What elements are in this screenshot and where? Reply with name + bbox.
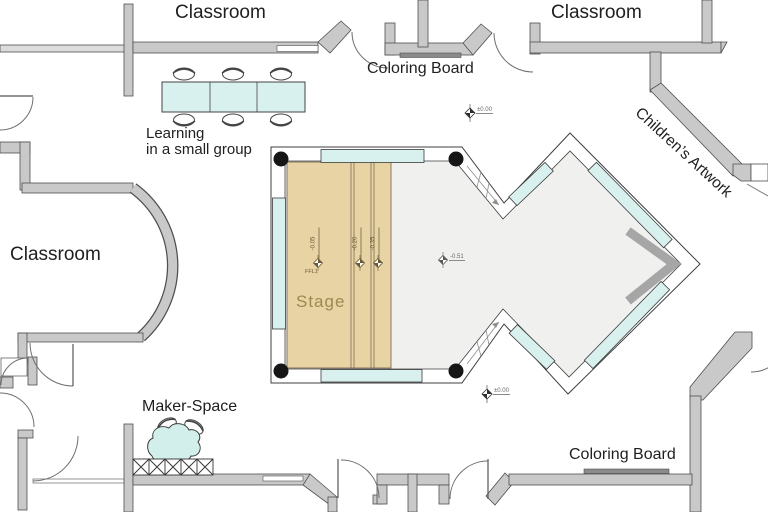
label-learning-line1: Learning: [146, 126, 252, 142]
glass-line: [747, 184, 768, 196]
wall-segment: [124, 424, 133, 512]
wall-segment: [18, 333, 143, 342]
room-label-classroom-left: Classroom: [10, 245, 101, 265]
maker-table-blob: [148, 424, 201, 463]
threshold: [33, 479, 124, 483]
room-label-classroom-top-right: Classroom: [551, 3, 642, 23]
wall-window-inset: [263, 476, 303, 481]
label-coloring-board-top: Coloring Board: [367, 61, 474, 78]
column: [274, 152, 289, 167]
wall-segment: [690, 396, 701, 512]
wall-segment: [328, 497, 337, 512]
floor-plan-canvas: Classroom Classroom Classroom Stage Colo…: [0, 0, 768, 512]
wall-segment: [408, 474, 417, 512]
amphitheater-pavilion: [271, 133, 700, 394]
label-maker-space: Maker-Space: [142, 399, 237, 416]
label-learning-group: Learning in a small group: [146, 126, 252, 158]
door-leaf: [1, 358, 27, 376]
door-arc: [341, 460, 379, 498]
wall-segment: [530, 42, 721, 53]
wall-segment: [439, 485, 449, 504]
column: [274, 364, 289, 379]
elevation-text-step-low: -0.35: [371, 228, 380, 260]
wall-segment: [318, 21, 351, 53]
column: [449, 364, 464, 379]
column: [449, 152, 464, 167]
elevation-text-step-mid: -0.20: [353, 228, 362, 260]
room-label-classroom-top-left: Classroom: [175, 3, 266, 23]
elevation-text-entry-top: ±0.00: [476, 107, 493, 114]
label-coloring-board-bottom: Coloring Board: [569, 447, 676, 464]
wall-segment: [509, 474, 692, 485]
wall-segment: [418, 0, 428, 47]
elevation-symbol-entry-top: [465, 104, 475, 122]
door-arc: [450, 461, 488, 499]
wall-window-inset: [277, 46, 318, 52]
window: [273, 198, 286, 329]
wall-window-inset: [751, 164, 768, 181]
wall-segment: [733, 164, 751, 181]
wall-segment: [28, 357, 37, 385]
group-learning-table: [162, 68, 305, 126]
elevation-symbol-entry-bottom: [482, 385, 492, 403]
door-arc: [0, 97, 33, 130]
door-arc: [494, 33, 533, 72]
window: [321, 370, 422, 383]
label-learning-line2: in a small group: [146, 142, 252, 158]
coloring-board-strip-top: [400, 53, 461, 58]
wall-segment: [0, 45, 128, 52]
room-label-stage: Stage: [296, 293, 345, 311]
wall-segment: [22, 183, 133, 193]
wall-segment: [124, 4, 133, 96]
elevation-text-stage: -0.05: [311, 228, 320, 260]
wall-segment: [702, 0, 712, 43]
door-arc: [751, 336, 768, 372]
elevation-text-entry-bottom: ±0.00: [493, 388, 510, 395]
wall-segment: [721, 42, 727, 53]
door-arc: [0, 393, 34, 427]
coloring-board-strip-bottom: [584, 469, 669, 474]
door-arc: [33, 436, 78, 481]
maker-space-furniture: [133, 415, 213, 475]
table: [162, 82, 305, 112]
wall-segment: [18, 430, 33, 438]
elevation-text-floor: -0.51: [449, 254, 465, 261]
workbench-hatch: [133, 459, 213, 475]
window: [321, 150, 424, 163]
wall-segment: [690, 332, 752, 400]
elevation-subtext-stage: FFL1: [305, 269, 318, 275]
wall-segment: [18, 438, 27, 510]
